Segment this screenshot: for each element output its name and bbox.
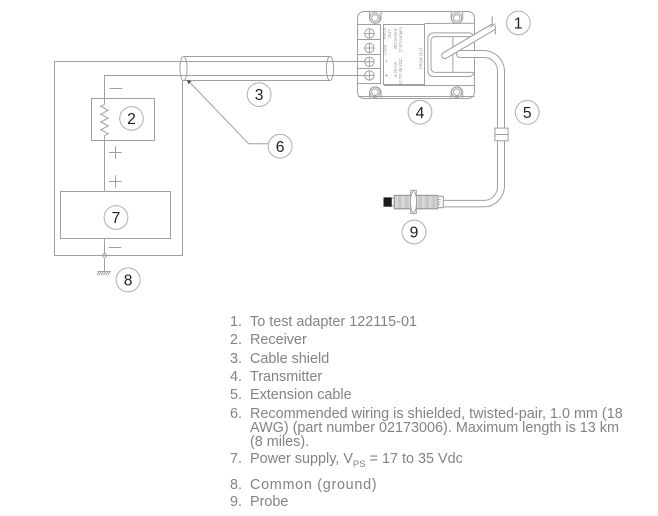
svg-text:+: + (385, 73, 391, 77)
svg-text:9: 9 (410, 225, 419, 242)
svg-text:PROX OUT: PROX OUT (419, 47, 424, 69)
svg-text:COM: COM (383, 45, 388, 55)
svg-text:8: 8 (124, 273, 133, 290)
svg-text:2: 2 (127, 111, 136, 128)
svg-text:5: 5 (523, 105, 532, 122)
svg-text:–: – (384, 59, 390, 63)
svg-text:(7.87 mV/µm): (7.87 mV/µm) (398, 26, 403, 52)
svg-text:12 TO 35 VDC: 12 TO 35 VDC (398, 58, 403, 85)
svg-text:OUT: OUT (387, 29, 392, 38)
svg-text:1: 1 (514, 16, 523, 33)
svg-text:4: 4 (416, 105, 425, 122)
svg-text:7: 7 (112, 210, 121, 227)
svg-text:3: 3 (255, 87, 264, 104)
svg-text:6: 6 (276, 139, 285, 156)
